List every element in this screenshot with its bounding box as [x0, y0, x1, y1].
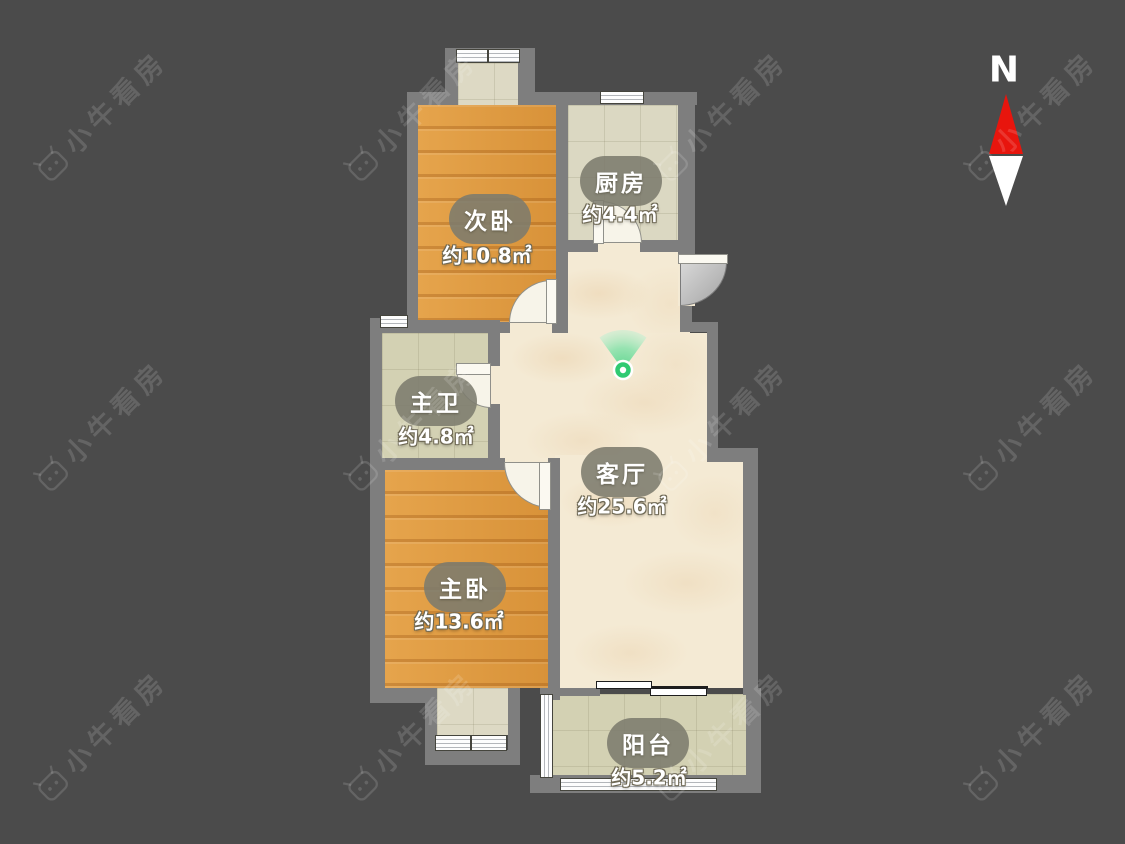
door-leaf-icon — [546, 279, 557, 324]
watermark-text: 小牛看房 — [54, 40, 175, 161]
wall-segment — [425, 750, 520, 765]
room-area-balcony: 约5.2㎡ — [611, 762, 686, 791]
room-area-kitchen: 约4.4㎡ — [582, 199, 657, 228]
window-icon — [380, 315, 408, 328]
room-pill-secondary-bedroom: 次卧 — [449, 194, 531, 244]
room-area-bathroom: 约4.8㎡ — [398, 421, 473, 450]
bay-window-floor-south — [437, 688, 508, 735]
wall-segment — [743, 448, 758, 695]
wall-segment — [707, 330, 718, 452]
door-leaf-icon — [456, 363, 491, 375]
wall-segment — [488, 402, 500, 458]
door-leaf-icon — [539, 462, 551, 510]
floorplan-canvas: 次卧 约10.8㎡ 厨房 约4.4㎡ 主卫 约4.8㎡ 客厅 约25.6㎡ 主卧… — [0, 0, 1125, 844]
wall-segment — [407, 92, 418, 333]
room-pill-bathroom: 主卫 — [395, 376, 477, 426]
wall-segment — [556, 92, 568, 333]
watermark-text: 小牛看房 — [54, 350, 175, 471]
entry-door-leaf-icon — [678, 254, 728, 264]
watermark: 小牛看房 — [25, 40, 174, 189]
bay-window-floor-north — [458, 63, 518, 105]
entry-door-swing-icon — [680, 262, 727, 306]
room-pill-living-room: 客厅 — [581, 447, 663, 497]
watermark: 小牛看房 — [955, 40, 1104, 189]
wall-segment — [370, 318, 382, 470]
north-arrow-icon — [986, 92, 1026, 208]
compass-north-label: N — [989, 50, 1019, 91]
wall-segment — [370, 458, 385, 703]
wall-segment — [370, 458, 507, 470]
window-divider — [487, 50, 489, 62]
room-area-living-room: 约25.6㎡ — [577, 491, 666, 520]
sliding-door-panel — [650, 688, 707, 696]
room-area-master-bedroom: 约13.6㎡ — [414, 606, 503, 635]
watermark-text: 小牛看房 — [984, 350, 1105, 471]
window-divider — [470, 736, 472, 750]
watermark: 小牛看房 — [955, 350, 1104, 499]
window-icon — [540, 694, 553, 778]
room-area-secondary-bedroom: 约10.8㎡ — [442, 240, 531, 269]
room-pill-balcony: 阳台 — [607, 718, 689, 768]
watermark: 小牛看房 — [25, 660, 174, 809]
watermark-text: 小牛看房 — [984, 660, 1105, 781]
watermark: 小牛看房 — [25, 350, 174, 499]
wall-segment — [746, 688, 761, 793]
watermark-text: 小牛看房 — [54, 660, 175, 781]
wall-segment — [640, 240, 690, 252]
viewpoint-icon[interactable] — [593, 326, 653, 382]
watermark: 小牛看房 — [955, 660, 1104, 809]
wall-segment — [678, 92, 695, 263]
room-pill-master-bedroom: 主卧 — [424, 562, 506, 612]
window-icon — [600, 91, 644, 104]
sliding-door-panel — [596, 681, 652, 689]
